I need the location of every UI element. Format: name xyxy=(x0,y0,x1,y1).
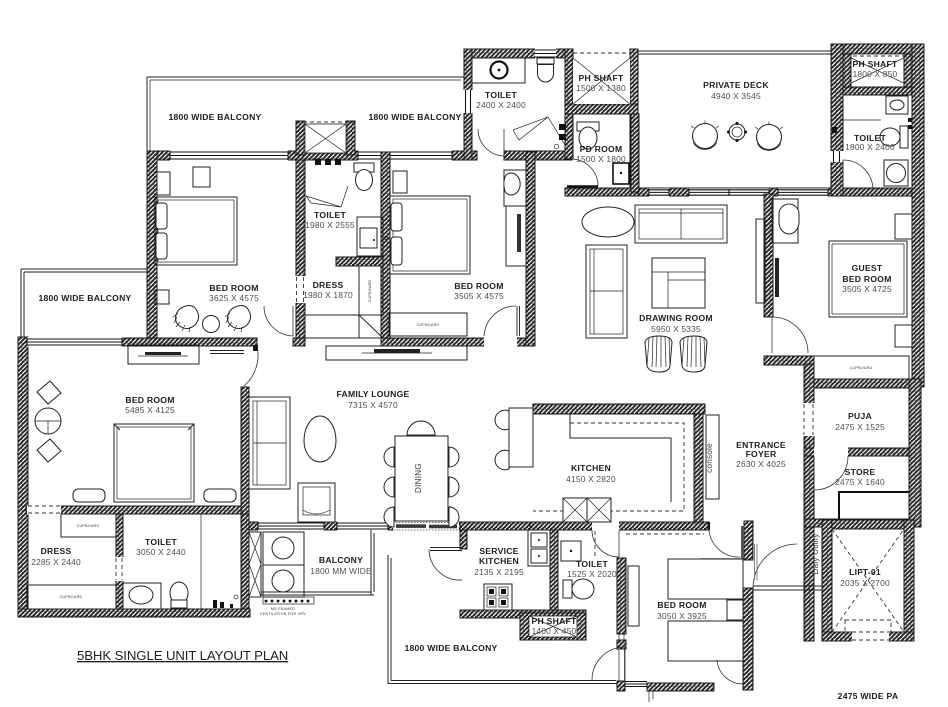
svg-text:4150 X 2820: 4150 X 2820 xyxy=(566,474,616,484)
svg-text:2135 X 2195: 2135 X 2195 xyxy=(474,567,524,577)
svg-text:MS FRAMED: MS FRAMED xyxy=(271,607,295,611)
svg-text:BED ROOM: BED ROOM xyxy=(842,274,891,284)
svg-text:1525 X 2020: 1525 X 2020 xyxy=(567,569,617,579)
svg-text:PRIVATE DECK: PRIVATE DECK xyxy=(703,80,769,90)
svg-text:3050 X 3925: 3050 X 3925 xyxy=(657,611,707,621)
svg-text:BALCONY: BALCONY xyxy=(319,555,363,565)
svg-text:1800 X 850: 1800 X 850 xyxy=(853,69,898,79)
svg-text:3625 X 4575: 3625 X 4575 xyxy=(209,293,259,303)
svg-text:CUPBOARD: CUPBOARD xyxy=(368,280,372,303)
svg-text:7315 X 4570: 7315 X 4570 xyxy=(348,400,398,410)
svg-text:3505 X 4725: 3505 X 4725 xyxy=(842,284,892,294)
svg-text:PH SHAFT: PH SHAFT xyxy=(579,73,624,83)
svg-text:console: console xyxy=(705,443,714,473)
svg-text:CUPBOARD: CUPBOARD xyxy=(850,366,873,370)
svg-text:PUJA: PUJA xyxy=(848,411,872,421)
svg-text:1800 WIDE BALCONY: 1800 WIDE BALCONY xyxy=(168,112,261,122)
svg-text:FOYER: FOYER xyxy=(746,449,777,459)
svg-text:3050 X 2440: 3050 X 2440 xyxy=(136,547,186,557)
svg-text:1500 X 1800: 1500 X 1800 xyxy=(576,154,626,164)
svg-text:1400 X 450: 1400 X 450 xyxy=(532,626,577,636)
svg-text:1800 MM WIDE: 1800 MM WIDE xyxy=(310,566,372,576)
svg-text:1800 X 2400: 1800 X 2400 xyxy=(845,142,895,152)
svg-text:KITCHEN: KITCHEN xyxy=(479,556,519,566)
svg-text:3505 X 4575: 3505 X 4575 xyxy=(454,291,504,301)
svg-text:PD ROOM: PD ROOM xyxy=(580,144,623,154)
svg-text:1800 WIDE BALCONY: 1800 WIDE BALCONY xyxy=(368,112,461,122)
svg-text:DRESS: DRESS xyxy=(313,280,344,290)
svg-text:BED ROOM: BED ROOM xyxy=(657,600,706,610)
svg-text:5950 X 5335: 5950 X 5335 xyxy=(651,324,701,334)
svg-text:FAMILY LOUNGE: FAMILY LOUNGE xyxy=(337,389,410,399)
svg-text:BED ROOM: BED ROOM xyxy=(125,395,174,405)
svg-text:2475 WIDE PA: 2475 WIDE PA xyxy=(838,691,899,701)
svg-text:1800 WIDE BALCONY: 1800 WIDE BALCONY xyxy=(38,293,131,303)
svg-text:DRAWING ROOM: DRAWING ROOM xyxy=(639,313,713,323)
svg-text:TOILET: TOILET xyxy=(314,210,346,220)
svg-text:PH SHAFT: PH SHAFT xyxy=(532,616,577,626)
svg-text:BED ROOM: BED ROOM xyxy=(209,283,258,293)
svg-text:5485 X 4125: 5485 X 4125 xyxy=(125,405,175,415)
svg-text:5BHK SINGLE UNIT LAYOUT PLAN: 5BHK SINGLE UNIT LAYOUT PLAN xyxy=(77,648,288,663)
svg-text:GUEST: GUEST xyxy=(852,263,883,273)
svg-text:CUPBOARD: CUPBOARD xyxy=(60,595,83,599)
svg-text:KITCHEN: KITCHEN xyxy=(571,463,611,473)
svg-text:1980 X 1870: 1980 X 1870 xyxy=(303,290,353,300)
svg-text:2475 X 1640: 2475 X 1640 xyxy=(835,477,885,487)
svg-text:VENTILATION FOR VRV: VENTILATION FOR VRV xyxy=(260,612,306,616)
svg-text:PH SHAFT: PH SHAFT xyxy=(853,59,898,69)
svg-text:CUPBOARD: CUPBOARD xyxy=(417,323,440,327)
svg-text:2630 X 4025: 2630 X 4025 xyxy=(736,459,786,469)
svg-text:TOILET: TOILET xyxy=(145,537,177,547)
svg-text:BED ROOM: BED ROOM xyxy=(454,281,503,291)
svg-text:DINING: DINING xyxy=(414,463,423,493)
svg-text:2475 X 1525: 2475 X 1525 xyxy=(835,422,885,432)
svg-text:2035 X 2700: 2035 X 2700 xyxy=(840,578,890,588)
svg-text:SERVICE: SERVICE xyxy=(479,546,518,556)
svg-text:CUPBOARD: CUPBOARD xyxy=(77,524,100,528)
svg-text:STORE: STORE xyxy=(845,467,876,477)
svg-text:DRESS: DRESS xyxy=(41,546,72,556)
svg-text:1500 X 1380: 1500 X 1380 xyxy=(576,83,626,93)
svg-text:1800 WIDE BALCONY: 1800 WIDE BALCONY xyxy=(404,643,497,653)
svg-text:TOILET: TOILET xyxy=(485,90,517,100)
svg-text:1980 X 2555: 1980 X 2555 xyxy=(305,220,355,230)
svg-text:2285 X 2440: 2285 X 2440 xyxy=(31,557,81,567)
svg-text:LIFT-01: LIFT-01 xyxy=(849,567,881,577)
svg-text:TOILET: TOILET xyxy=(576,559,608,569)
svg-text:Daly Utility: Daly Utility xyxy=(811,533,820,575)
svg-text:4940 X 3545: 4940 X 3545 xyxy=(711,91,761,101)
svg-text:2400 X 2400: 2400 X 2400 xyxy=(476,100,526,110)
